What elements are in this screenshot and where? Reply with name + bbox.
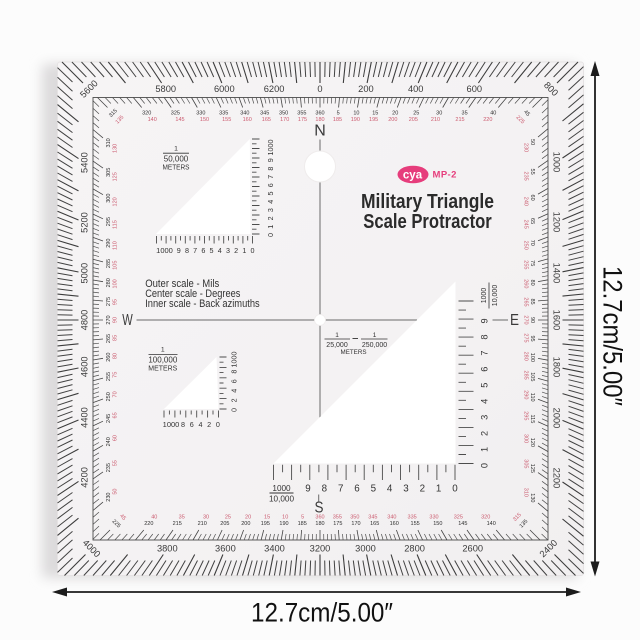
svg-text:2200: 2200 (552, 468, 562, 489)
svg-text:100: 100 (113, 279, 119, 288)
svg-text:4: 4 (266, 200, 275, 204)
svg-text:6: 6 (230, 379, 239, 383)
svg-text:1: 1 (480, 447, 490, 452)
svg-text:600: 600 (467, 84, 483, 94)
svg-text:270: 270 (523, 315, 529, 324)
svg-text:65: 65 (113, 412, 119, 418)
svg-text:20: 20 (392, 111, 398, 117)
svg-text:145: 145 (458, 521, 467, 527)
svg-text:7: 7 (266, 175, 275, 179)
svg-text:255: 255 (523, 260, 529, 269)
svg-text:20: 20 (245, 515, 251, 521)
svg-text:2: 2 (480, 431, 490, 436)
svg-text:7: 7 (480, 351, 490, 356)
svg-text:335: 335 (408, 515, 417, 521)
svg-text:2600: 2600 (462, 544, 483, 554)
svg-text:165: 165 (370, 521, 379, 527)
svg-text:140: 140 (148, 117, 157, 123)
svg-text:355: 355 (297, 111, 306, 117)
svg-text:65: 65 (529, 218, 535, 224)
svg-text:320: 320 (142, 111, 151, 117)
svg-text:4: 4 (387, 484, 393, 495)
svg-text:185: 185 (298, 521, 307, 527)
svg-text:350: 350 (279, 111, 288, 117)
svg-text:290: 290 (523, 390, 529, 399)
svg-text:160: 160 (390, 521, 399, 527)
svg-text:250: 250 (106, 392, 112, 401)
svg-text:0: 0 (317, 84, 322, 94)
svg-text:3600: 3600 (215, 544, 236, 554)
svg-text:2: 2 (230, 398, 239, 402)
svg-text:305: 305 (106, 168, 112, 177)
svg-text:235: 235 (106, 463, 112, 472)
svg-text:10: 10 (282, 515, 288, 521)
svg-text:5800: 5800 (155, 84, 176, 94)
svg-text:4: 4 (480, 399, 490, 404)
svg-text:2000: 2000 (552, 408, 562, 429)
svg-text:8: 8 (230, 370, 239, 374)
svg-text:4: 4 (198, 420, 202, 429)
svg-text:340: 340 (240, 111, 249, 117)
svg-text:35: 35 (179, 515, 185, 521)
svg-text:1: 1 (373, 332, 377, 339)
svg-text:105: 105 (529, 372, 535, 381)
svg-text:3800: 3800 (157, 544, 178, 554)
svg-text:1: 1 (436, 484, 441, 495)
svg-text:115: 115 (529, 415, 535, 424)
svg-text:5200: 5200 (80, 212, 90, 233)
svg-text:50: 50 (113, 489, 119, 495)
svg-text:1: 1 (161, 347, 165, 354)
svg-text:210: 210 (431, 117, 440, 123)
svg-text:285: 285 (106, 259, 112, 268)
svg-text:9: 9 (480, 318, 490, 323)
svg-text:E: E (510, 312, 519, 329)
svg-text:200: 200 (358, 84, 374, 94)
svg-text:325: 325 (454, 515, 463, 521)
svg-text:115: 115 (113, 220, 119, 229)
svg-text:N: N (314, 123, 326, 140)
svg-text:300: 300 (106, 194, 112, 203)
svg-text:30: 30 (203, 515, 209, 521)
svg-text:130: 130 (529, 493, 535, 502)
svg-text:125: 125 (113, 172, 119, 181)
svg-text:325: 325 (171, 111, 180, 117)
svg-text:330: 330 (196, 111, 205, 117)
svg-text:345: 345 (368, 515, 377, 521)
svg-text:METERS: METERS (163, 165, 190, 172)
svg-text:360: 360 (315, 111, 324, 117)
svg-text:8: 8 (480, 334, 490, 339)
svg-text:6: 6 (190, 420, 194, 429)
svg-text:0: 0 (480, 463, 490, 468)
svg-text:90: 90 (529, 317, 535, 323)
svg-text:75: 75 (529, 260, 535, 266)
svg-text:8: 8 (322, 484, 328, 495)
svg-text:0: 0 (266, 233, 275, 237)
svg-text:190: 190 (279, 521, 288, 527)
svg-text:60: 60 (113, 435, 119, 441)
svg-text:1600: 1600 (552, 310, 562, 331)
svg-text:2: 2 (234, 246, 238, 255)
svg-text:180: 180 (315, 521, 324, 527)
svg-text:6: 6 (480, 367, 490, 372)
svg-text:285: 285 (523, 371, 529, 380)
svg-text:195: 195 (261, 521, 270, 527)
svg-text:0: 0 (251, 246, 255, 255)
svg-text:METERS: METERS (148, 364, 177, 373)
svg-text:85: 85 (113, 335, 119, 341)
svg-text:5: 5 (266, 192, 275, 196)
svg-text:1000: 1000 (481, 288, 488, 304)
svg-text:265: 265 (106, 334, 112, 343)
svg-text:230: 230 (106, 493, 112, 502)
svg-text:1: 1 (174, 146, 178, 153)
svg-text:METERS: METERS (341, 349, 367, 356)
svg-text:145: 145 (175, 117, 184, 123)
svg-text:6: 6 (354, 484, 360, 495)
svg-text:200: 200 (241, 521, 250, 527)
svg-text:40: 40 (490, 111, 496, 117)
svg-text:150: 150 (433, 521, 442, 527)
svg-text:1000: 1000 (272, 484, 291, 493)
svg-text:230: 230 (523, 143, 529, 152)
svg-text:175: 175 (298, 117, 307, 123)
svg-text:5: 5 (371, 484, 377, 495)
svg-text:4600: 4600 (80, 356, 90, 377)
svg-text:350: 350 (350, 515, 359, 521)
svg-text:110: 110 (529, 393, 535, 402)
svg-text:1000: 1000 (552, 152, 562, 173)
svg-text:9: 9 (177, 246, 181, 255)
svg-text:215: 215 (455, 117, 464, 123)
svg-text:80: 80 (113, 353, 119, 359)
svg-text:0: 0 (216, 420, 220, 429)
svg-text:12.7cm/5.00″: 12.7cm/5.00″ (251, 598, 393, 628)
svg-text:190: 190 (351, 117, 360, 123)
svg-text:125: 125 (529, 464, 535, 473)
svg-text:215: 215 (173, 521, 182, 527)
svg-text:55: 55 (529, 169, 535, 175)
svg-text:35: 35 (462, 111, 468, 117)
svg-text:1000: 1000 (156, 246, 173, 255)
svg-text:4200: 4200 (80, 467, 90, 488)
svg-text:8: 8 (185, 246, 189, 255)
svg-text:110: 110 (113, 241, 119, 250)
svg-text:2800: 2800 (404, 544, 425, 554)
svg-text:120: 120 (529, 438, 535, 447)
svg-text:4: 4 (230, 389, 239, 393)
svg-text:105: 105 (113, 261, 119, 270)
svg-text:6000: 6000 (214, 84, 235, 94)
svg-text:1800: 1800 (552, 357, 562, 378)
svg-text:Scale Protractor: Scale Protractor (363, 210, 492, 233)
svg-text:185: 185 (333, 117, 342, 123)
svg-text:30: 30 (436, 111, 442, 117)
svg-text:S: S (315, 500, 324, 517)
svg-text:3000: 3000 (355, 544, 376, 554)
svg-text:1: 1 (266, 225, 275, 229)
svg-text:355: 355 (333, 515, 342, 521)
svg-text:250: 250 (523, 241, 529, 250)
svg-text:10,000: 10,000 (269, 495, 294, 504)
svg-text:95: 95 (113, 299, 119, 305)
svg-text:345: 345 (260, 111, 269, 117)
svg-text:8: 8 (266, 167, 275, 171)
svg-text:235: 235 (523, 172, 529, 181)
svg-text:200: 200 (388, 117, 397, 123)
svg-text:5: 5 (210, 246, 214, 255)
svg-text:165: 165 (262, 117, 271, 123)
svg-text:3: 3 (226, 246, 230, 255)
svg-text:4: 4 (218, 246, 222, 255)
svg-text:290: 290 (106, 239, 112, 248)
svg-text:1000: 1000 (163, 420, 180, 429)
svg-text:335: 335 (219, 111, 228, 117)
svg-text:330: 330 (429, 515, 438, 521)
svg-text:170: 170 (351, 521, 360, 527)
svg-text:210: 210 (198, 521, 207, 527)
svg-text:220: 220 (144, 521, 153, 527)
svg-text:310: 310 (106, 138, 112, 147)
svg-text:5000: 5000 (80, 263, 90, 284)
svg-text:245: 245 (106, 414, 112, 423)
svg-text:205: 205 (409, 117, 418, 123)
svg-text:40: 40 (151, 515, 157, 521)
svg-text:10: 10 (353, 111, 359, 117)
svg-text:MP-2: MP-2 (433, 170, 457, 181)
svg-text:150: 150 (200, 117, 209, 123)
svg-text:1400: 1400 (552, 263, 562, 284)
svg-text:295: 295 (523, 411, 529, 420)
svg-text:0: 0 (230, 408, 239, 412)
svg-text:25: 25 (225, 515, 231, 521)
svg-text:320: 320 (481, 515, 490, 521)
svg-text:3: 3 (266, 208, 275, 212)
svg-text:85: 85 (529, 298, 535, 304)
svg-text:255: 255 (106, 372, 112, 381)
svg-text:265: 265 (523, 297, 529, 306)
svg-text:15: 15 (372, 111, 378, 117)
svg-text:100: 100 (529, 353, 535, 362)
svg-text:3: 3 (480, 415, 490, 420)
svg-text:7: 7 (338, 484, 343, 495)
svg-text:60: 60 (529, 195, 535, 201)
svg-text:1: 1 (242, 246, 246, 255)
svg-text:50: 50 (529, 139, 535, 145)
svg-text:175: 175 (333, 521, 342, 527)
svg-text:140: 140 (487, 521, 496, 527)
svg-text:6: 6 (201, 246, 205, 255)
svg-text:cya: cya (403, 170, 423, 182)
svg-text:4800: 4800 (80, 310, 90, 331)
svg-text:6200: 6200 (264, 84, 285, 94)
svg-text:400: 400 (408, 84, 424, 94)
svg-text:195: 195 (369, 117, 378, 123)
svg-text:170: 170 (280, 117, 289, 123)
svg-text:130: 130 (113, 144, 119, 153)
svg-text:95: 95 (529, 335, 535, 341)
svg-text:270: 270 (106, 315, 112, 324)
svg-text:260: 260 (523, 279, 529, 288)
svg-text:70: 70 (529, 240, 535, 246)
svg-text:70: 70 (113, 391, 119, 397)
svg-text:2: 2 (207, 420, 211, 429)
svg-text:275: 275 (106, 297, 112, 306)
svg-text:1200: 1200 (552, 212, 562, 233)
svg-text:155: 155 (222, 117, 231, 123)
svg-text:1: 1 (335, 332, 339, 339)
svg-text:340: 340 (387, 515, 396, 521)
svg-text:205: 205 (220, 521, 229, 527)
svg-text:275: 275 (523, 333, 529, 342)
svg-text:155: 155 (411, 521, 420, 527)
svg-text:75: 75 (113, 372, 119, 378)
svg-text:1000: 1000 (230, 352, 239, 368)
svg-text:2: 2 (266, 216, 275, 220)
svg-text:5: 5 (480, 383, 490, 388)
svg-text:120: 120 (113, 197, 119, 206)
svg-text:240: 240 (106, 437, 112, 446)
svg-text:305: 305 (523, 459, 529, 468)
svg-text:25: 25 (413, 111, 419, 117)
svg-text:300: 300 (523, 434, 529, 443)
svg-text:90: 90 (113, 317, 119, 323)
svg-text:10,000: 10,000 (492, 285, 499, 307)
svg-text:220: 220 (483, 117, 492, 123)
svg-text:7: 7 (193, 246, 197, 255)
svg-text:295: 295 (106, 217, 112, 226)
svg-text:1000: 1000 (266, 140, 275, 156)
svg-text:280: 280 (523, 352, 529, 361)
svg-text:9: 9 (266, 158, 275, 162)
svg-text:245: 245 (523, 220, 529, 229)
svg-text:12.7cm/5.00″: 12.7cm/5.00″ (598, 266, 628, 406)
svg-text:9: 9 (305, 484, 310, 495)
svg-text:3: 3 (403, 484, 409, 495)
svg-text:50,000: 50,000 (164, 155, 189, 164)
svg-text:55: 55 (113, 460, 119, 466)
svg-text:5: 5 (301, 515, 304, 521)
svg-text:260: 260 (106, 353, 112, 362)
svg-text:5400: 5400 (80, 152, 90, 173)
svg-text:3200: 3200 (310, 544, 331, 554)
svg-text:240: 240 (523, 197, 529, 206)
svg-text:4400: 4400 (80, 407, 90, 428)
svg-text:Inner scale - Back azimuths: Inner scale - Back azimuths (145, 298, 260, 310)
svg-text:W: W (122, 312, 133, 329)
svg-text:0: 0 (452, 484, 458, 495)
svg-text:15: 15 (264, 515, 270, 521)
svg-text:80: 80 (529, 280, 535, 286)
svg-text:5: 5 (337, 111, 340, 117)
svg-text:6: 6 (266, 183, 275, 187)
svg-text:3400: 3400 (264, 544, 285, 554)
svg-text:310: 310 (523, 488, 529, 497)
svg-text:160: 160 (243, 117, 252, 123)
svg-text:2: 2 (420, 484, 425, 495)
svg-text:8: 8 (181, 420, 185, 429)
svg-text:280: 280 (106, 278, 112, 287)
